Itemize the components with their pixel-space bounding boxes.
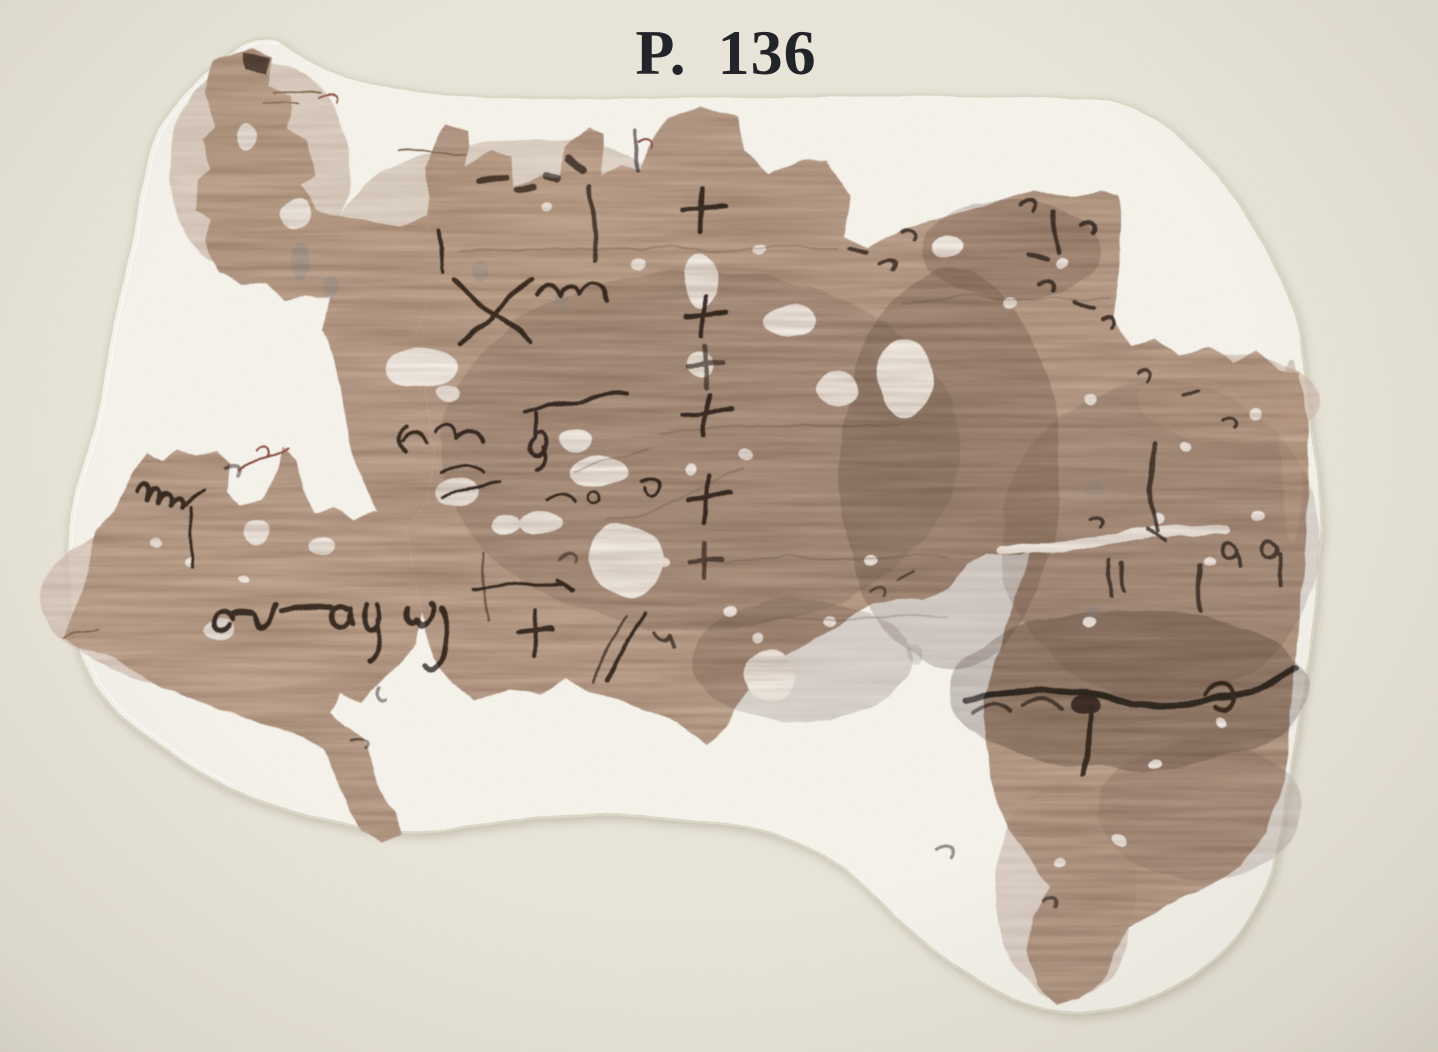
plate-scan: P. 136 bbox=[0, 0, 1438, 1052]
plate-title: P. 136 bbox=[0, 16, 1438, 90]
film-grain-overlay bbox=[0, 0, 1438, 1052]
plate-image bbox=[0, 0, 1438, 1052]
